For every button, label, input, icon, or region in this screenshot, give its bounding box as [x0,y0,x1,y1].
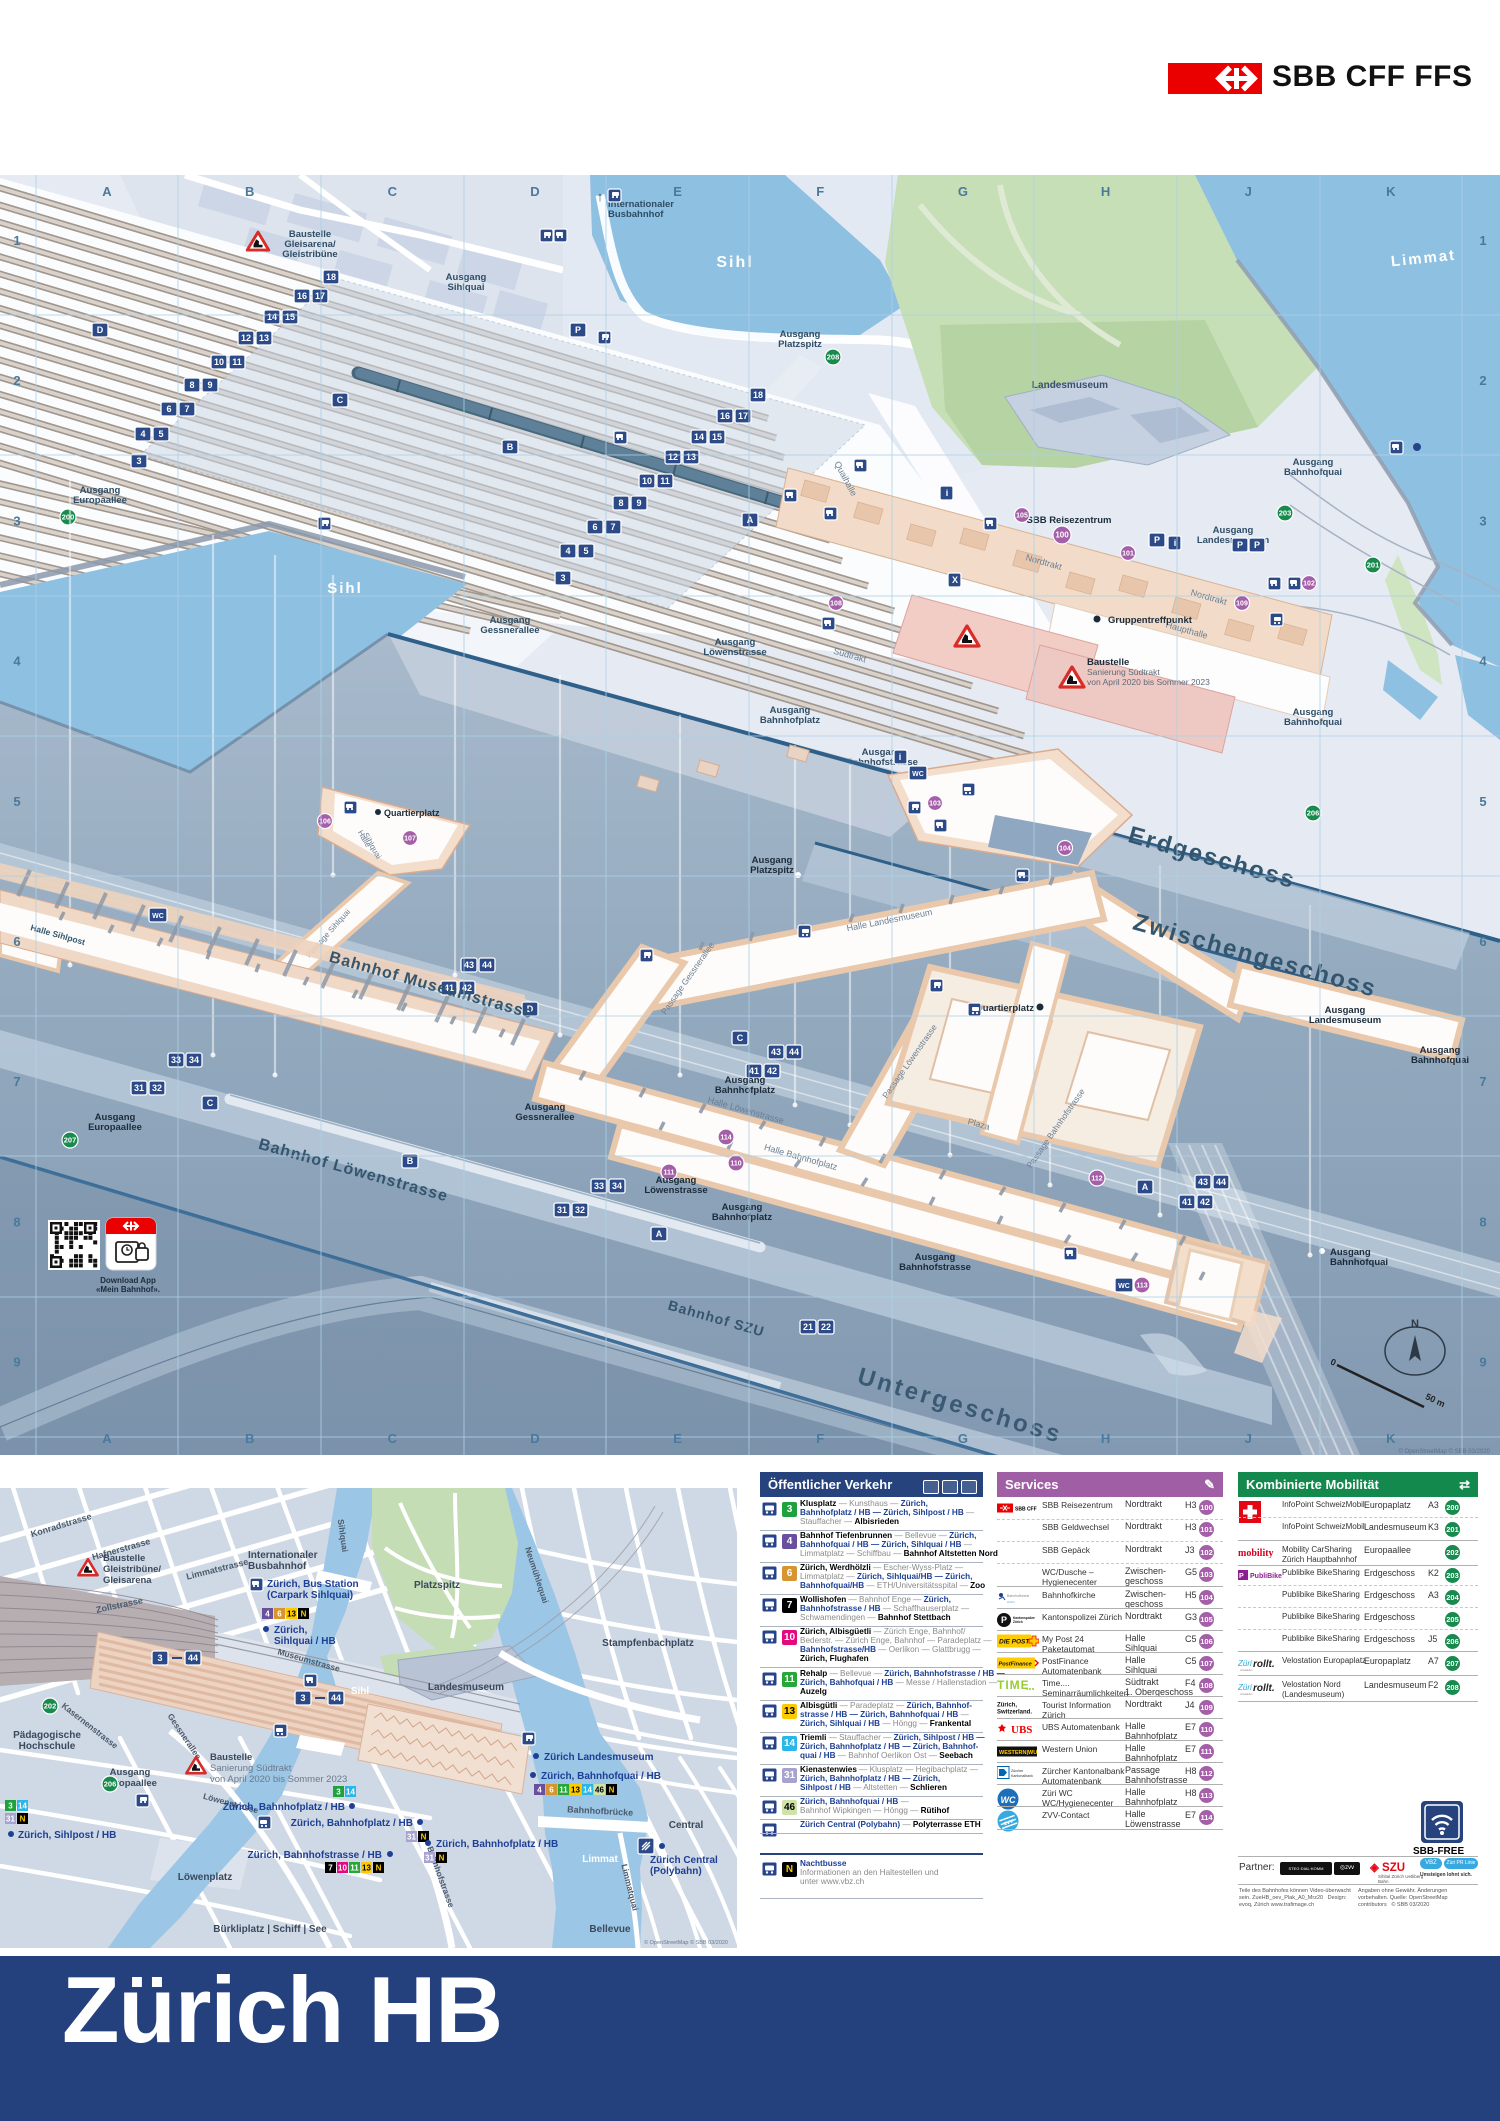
svg-text:31: 31 [557,1205,567,1215]
svg-text:206: 206 [104,1780,117,1789]
svg-text:113: 113 [1136,1283,1147,1290]
svg-text:von April 2020 bis Sommer 2023: von April 2020 bis Sommer 2023 [1087,677,1210,687]
svg-text:Europaallee: Europaallee [88,1122,142,1133]
svg-text:31: 31 [134,1083,144,1093]
svg-text:Platzspitz: Platzspitz [750,865,794,876]
svg-text:PubliBike: PubliBike [1250,1573,1282,1580]
svg-text:PostFinance: PostFinance [999,1662,1032,1668]
svg-text:Bahnhofstrasse: Bahnhofstrasse [899,1262,971,1273]
svg-text:12: 12 [668,452,678,462]
svg-text:Löwenplatz: Löwenplatz [178,1872,232,1883]
svg-text:Zürich, Sihlpost / HB: Zürich, Sihlpost / HB [18,1830,116,1841]
svg-text:14: 14 [583,1786,592,1795]
svg-text:C: C [207,1098,214,1108]
svg-text:32: 32 [575,1205,585,1215]
svg-text:Zürich,: Zürich, [997,1703,1017,1709]
svg-text:Pädagogische: Pädagogische [13,1730,81,1741]
svg-text:3: 3 [8,1802,13,1811]
svg-text:Landesmuseum: Landesmuseum [428,1682,504,1693]
svg-text:3: 3 [13,513,20,528]
svg-text:Zürich,: Zürich, [274,1625,308,1636]
svg-text:207: 207 [64,1136,77,1145]
svg-text:Bahnhofplatz: Bahnhofplatz [712,1212,772,1223]
svg-text:Bahnhofkirche: Bahnhofkirche [1007,1594,1029,1598]
svg-text:↑: ↑ [597,189,604,204]
svg-text:N: N [609,1786,615,1795]
svg-text:6: 6 [166,404,171,414]
svg-text:109: 109 [1236,601,1248,608]
svg-text:17: 17 [315,291,325,301]
svg-text:Sihl: Sihl [351,1686,370,1697]
svg-text:Bahnhofplatz: Bahnhofplatz [760,715,820,726]
svg-text:A: A [656,1229,663,1239]
svg-text:202: 202 [44,1702,57,1711]
svg-text:1: 1 [1479,233,1486,248]
svg-text:Bahnhofquai: Bahnhofquai [1284,467,1342,478]
svg-text:Sihl: Sihl [716,254,753,271]
svg-text:102: 102 [1303,581,1315,588]
svg-text:von April 2020 bis Sommer 2023: von April 2020 bis Sommer 2023 [210,1774,347,1785]
svg-text:31: 31 [6,1815,15,1824]
svg-text:E: E [673,1431,682,1446]
svg-text:2: 2 [1479,373,1486,388]
svg-text:18: 18 [753,390,763,400]
svg-text:44: 44 [482,960,492,970]
svg-text:44: 44 [1216,1177,1226,1187]
svg-text:4: 4 [565,546,570,556]
svg-text:rollt.: rollt. [1253,1683,1275,1694]
svg-text:Bahnhofquai: Bahnhofquai [1284,717,1342,728]
svg-text:A: A [1142,1182,1149,1192]
svg-text:21: 21 [803,1322,813,1332]
svg-text:Baustelle: Baustelle [103,1553,145,1564]
svg-text:Sanierung Südtrakt: Sanierung Südtrakt [210,1763,292,1774]
svg-text:C: C [337,395,344,405]
svg-text:velostation: velostation [1240,1692,1253,1696]
svg-text:13: 13 [686,452,696,462]
svg-text:Sihlquai: Sihlquai [448,282,485,293]
svg-text:Platzspitz: Platzspitz [414,1580,460,1591]
svg-text:11: 11 [660,476,670,486]
svg-text:© OpenStreetMap © SBB 03/2020: © OpenStreetMap © SBB 03/2020 [644,1939,728,1946]
svg-text:N: N [439,1854,445,1863]
svg-text:7: 7 [328,1864,333,1873]
svg-text:14: 14 [267,312,277,322]
svg-text:velostation: velostation [1240,1668,1253,1672]
svg-text:C: C [388,184,398,199]
svg-text:43: 43 [771,1047,781,1057]
svg-text:i: i [899,752,902,762]
svg-text:© OpenStreetMap © SBB 03/2020: © OpenStreetMap © SBB 03/2020 [1398,1448,1490,1455]
svg-text:10: 10 [338,1864,347,1873]
svg-text:Löwenstrasse: Löwenstrasse [703,647,766,658]
svg-text:(Polybahn): (Polybahn) [650,1866,702,1877]
svg-text:34: 34 [612,1181,622,1191]
svg-text:6: 6 [549,1786,554,1795]
svg-text:42: 42 [1200,1197,1210,1207]
svg-text:Bellevue: Bellevue [589,1924,631,1935]
svg-text:4: 4 [537,1786,542,1795]
svg-text:WC: WC [1001,1795,1016,1805]
svg-text:101: 101 [1122,551,1134,558]
svg-text:WC: WC [912,771,924,778]
svg-text:DIE POST: DIE POST [999,1639,1030,1646]
svg-text:N: N [20,1815,26,1824]
svg-text:mobility: mobility [1238,1548,1274,1558]
svg-text:Stampfenbachplatz: Stampfenbachplatz [602,1638,694,1649]
svg-text:SBB Reisezentrum: SBB Reisezentrum [1027,515,1112,526]
svg-text:Sihlquai / HB: Sihlquai / HB [274,1636,336,1647]
svg-text:UBS: UBS [1011,1724,1032,1735]
svg-text:«Mein Bahnhof».: «Mein Bahnhof». [96,1285,160,1294]
svg-text:D: D [530,184,539,199]
svg-text:J: J [1245,184,1252,199]
svg-text:13: 13 [259,333,269,343]
svg-text:33: 33 [171,1055,181,1065]
svg-text:SBB CFF FFS: SBB CFF FFS [1015,1507,1037,1513]
svg-text:B: B [407,1156,414,1166]
svg-text:11: 11 [559,1786,568,1795]
svg-text:WC: WC [1118,1283,1130,1290]
svg-text:1: 1 [13,233,20,248]
svg-text:Kantonalbank: Kantonalbank [1011,1774,1033,1778]
svg-text:11: 11 [350,1864,359,1873]
svg-text:22: 22 [821,1322,831,1332]
svg-text:Internationaler: Internationaler [248,1550,318,1561]
svg-text:Züri: Züri [1238,1659,1252,1668]
svg-text:18: 18 [326,272,336,282]
svg-text:Gruppentreffpunkt: Gruppentreffpunkt [1108,615,1193,626]
svg-text:10: 10 [214,357,224,367]
svg-text:201: 201 [1367,561,1380,570]
svg-text:Busbahnhof: Busbahnhof [248,1561,307,1572]
svg-text:43: 43 [1198,1177,1208,1187]
svg-text:i: i [946,488,949,498]
svg-text:5: 5 [158,429,163,439]
svg-text:Sanierung Südtrakt: Sanierung Südtrakt [1087,667,1160,677]
svg-text:Quartierplatz: Quartierplatz [384,808,440,818]
svg-text:Switzerland.: Switzerland. [997,1710,1032,1716]
svg-text:WESTERN|WU: WESTERN|WU [999,1750,1037,1756]
svg-text:5: 5 [1479,794,1486,809]
svg-text:104: 104 [1059,846,1071,853]
svg-text:103: 103 [929,801,941,808]
svg-text:6: 6 [1479,934,1486,949]
svg-text:N: N [1411,1318,1419,1330]
svg-text:203: 203 [1279,509,1292,518]
svg-text:15: 15 [285,312,295,322]
svg-text:G: G [958,1431,968,1446]
svg-text:5: 5 [583,546,588,556]
svg-text:4: 4 [13,654,21,669]
svg-text:Ausgang: Ausgang [110,1767,151,1778]
svg-text:6: 6 [592,522,597,532]
svg-text:200: 200 [62,513,75,522]
svg-text:A: A [747,515,754,525]
svg-text:14: 14 [346,1788,355,1797]
svg-text:3: 3 [157,1653,162,1663]
svg-text:Zürich Central: Zürich Central [650,1855,718,1866]
svg-text:P: P [1154,535,1160,545]
svg-text:3: 3 [1479,513,1486,528]
svg-text:P: P [1254,540,1260,550]
svg-text:108: 108 [830,601,842,608]
svg-text:43: 43 [464,960,474,970]
svg-text:Zürich, Bahnhofplatz / HB: Zürich, Bahnhofplatz / HB [291,1818,413,1829]
svg-text:Landesmuseum: Landesmuseum [1032,380,1108,391]
svg-text:D: D [97,325,104,335]
svg-text:Zürich, Bahnhofplatz / HB: Zürich, Bahnhofplatz / HB [223,1802,345,1813]
svg-text:Zürich Landesmuseum: Zürich Landesmuseum [544,1752,654,1763]
svg-text:9: 9 [13,1355,20,1370]
svg-text:31: 31 [407,1833,416,1842]
svg-text:N: N [376,1864,382,1873]
svg-text:C: C [737,1033,744,1043]
svg-text:J: J [1245,1431,1252,1446]
svg-text:114: 114 [720,1135,731,1142]
svg-text:P: P [1001,1615,1007,1625]
svg-text:44: 44 [188,1653,198,1663]
svg-text:A: A [102,184,112,199]
svg-text:Bahnhofquai: Bahnhofquai [1411,1055,1469,1066]
svg-text:13: 13 [571,1786,580,1795]
svg-text:E: E [673,184,682,199]
svg-text:44: 44 [331,1693,341,1703]
svg-text:16: 16 [720,411,730,421]
svg-text:31: 31 [425,1854,434,1863]
svg-text:A: A [102,1431,112,1446]
svg-text:17: 17 [738,411,748,421]
svg-text:Zürcher: Zürcher [1011,1769,1024,1773]
svg-text:11: 11 [232,357,242,367]
svg-text:110: 110 [730,1161,741,1168]
svg-text:TIME: TIME [997,1678,1030,1692]
svg-text:2: 2 [13,373,20,388]
svg-text:9: 9 [636,498,641,508]
svg-text:14: 14 [694,432,704,442]
svg-text:rollt.: rollt. [1253,1659,1275,1670]
svg-text:34: 34 [189,1055,199,1065]
svg-text:P: P [575,325,581,335]
svg-text:112: 112 [1091,1176,1102,1183]
svg-text:8: 8 [189,380,194,390]
svg-text:Zürich, Bus Station: Zürich, Bus Station [267,1579,359,1590]
svg-text:7: 7 [610,522,615,532]
svg-text:Bahnhofplatz: Bahnhofplatz [715,1085,775,1096]
svg-text:7: 7 [13,1074,20,1089]
svg-text:5: 5 [13,794,20,809]
svg-text:7: 7 [184,404,189,414]
svg-text:Baustelle: Baustelle [210,1752,252,1763]
svg-text:4: 4 [140,429,145,439]
svg-text:13: 13 [287,1610,296,1619]
svg-text:Züri: Züri [1238,1683,1252,1692]
svg-text:206: 206 [1307,809,1320,818]
svg-text:8: 8 [618,498,623,508]
svg-text:3: 3 [560,573,565,583]
svg-text:12: 12 [241,333,251,343]
svg-text:Zürich, Bahnhofquai / HB: Zürich, Bahnhofquai / HB [541,1771,661,1782]
svg-text:13: 13 [362,1864,371,1873]
svg-text:100: 100 [1055,531,1069,540]
svg-text:Platzspitz: Platzspitz [778,339,822,350]
svg-text:H: H [1101,1431,1110,1446]
svg-text:16: 16 [297,291,307,301]
svg-text:K: K [1386,184,1396,199]
svg-text:B: B [245,184,254,199]
svg-text:3: 3 [336,1788,341,1797]
svg-text:N: N [301,1610,307,1619]
svg-text:33: 33 [594,1181,604,1191]
svg-text:Zürich, Bahnhofplatz / HB: Zürich, Bahnhofplatz / HB [436,1839,558,1850]
svg-text:F: F [816,1431,824,1446]
svg-text:32: 32 [152,1083,162,1093]
svg-text:Zürich, Bahnhofstrasse / HB: Zürich, Bahnhofstrasse / HB [248,1850,382,1861]
svg-text:P: P [1237,540,1243,550]
svg-text:Quartierplatz: Quartierplatz [975,1003,1034,1014]
svg-text:3: 3 [300,1693,305,1703]
svg-text:B: B [245,1431,254,1446]
svg-text:Gessnerallee: Gessnerallee [515,1112,574,1123]
svg-text:Bürkliplatz | Schiff | See: Bürkliplatz | Schiff | See [213,1924,327,1935]
svg-text:10: 10 [642,476,652,486]
svg-text:9: 9 [207,380,212,390]
svg-text:8: 8 [1479,1214,1486,1229]
svg-text:N: N [421,1833,427,1842]
svg-text:Gleistribüne: Gleistribüne [282,249,337,260]
svg-text:6: 6 [13,934,20,949]
svg-text:107: 107 [404,836,416,843]
svg-text:B: B [507,442,514,452]
svg-text:WC: WC [152,913,164,920]
svg-text:Gessnerallee: Gessnerallee [480,625,539,636]
svg-text:K: K [1386,1431,1396,1446]
svg-text:14: 14 [18,1802,27,1811]
svg-text:H: H [1101,184,1110,199]
svg-text:Europaallee: Europaallee [73,495,127,506]
svg-text:208: 208 [827,353,840,362]
svg-text:F: F [816,184,824,199]
svg-text:4: 4 [1479,654,1487,669]
svg-text:Gleistribüne/: Gleistribüne/ [103,1564,161,1575]
svg-text:Löwenstrasse: Löwenstrasse [644,1185,707,1196]
svg-text:zürich: zürich [1007,1600,1015,1604]
svg-text:105: 105 [1016,513,1028,520]
svg-text:6: 6 [277,1610,282,1619]
svg-text:Hochschule: Hochschule [19,1741,76,1752]
svg-text:Central: Central [669,1820,704,1831]
svg-text:4: 4 [265,1610,270,1619]
svg-text:41: 41 [1182,1197,1192,1207]
svg-text:C: C [388,1431,398,1446]
svg-text:G: G [958,184,968,199]
svg-text:Busbahnhof: Busbahnhof [608,209,664,220]
svg-text:X: X [952,575,958,585]
svg-text:15: 15 [712,432,722,442]
svg-text:Gleisarena: Gleisarena [103,1575,152,1586]
svg-text:46: 46 [595,1786,604,1795]
svg-text:8: 8 [13,1214,20,1229]
svg-text:Limmat: Limmat [582,1854,618,1865]
svg-text:P: P [1239,1573,1244,1580]
svg-text:7: 7 [1479,1074,1486,1089]
svg-text:9: 9 [1479,1355,1486,1370]
svg-text:Download App: Download App [100,1276,156,1285]
svg-text:42: 42 [767,1066,777,1076]
svg-text:D: D [530,1431,539,1446]
svg-text:Bahnhofquai: Bahnhofquai [1330,1257,1388,1268]
svg-text:Zürich: Zürich [1013,1620,1023,1624]
svg-text:3: 3 [136,456,141,466]
svg-text:i: i [1174,538,1177,548]
svg-text:(Carpark Sihlquai): (Carpark Sihlquai) [267,1590,353,1601]
svg-text:44: 44 [789,1047,799,1057]
